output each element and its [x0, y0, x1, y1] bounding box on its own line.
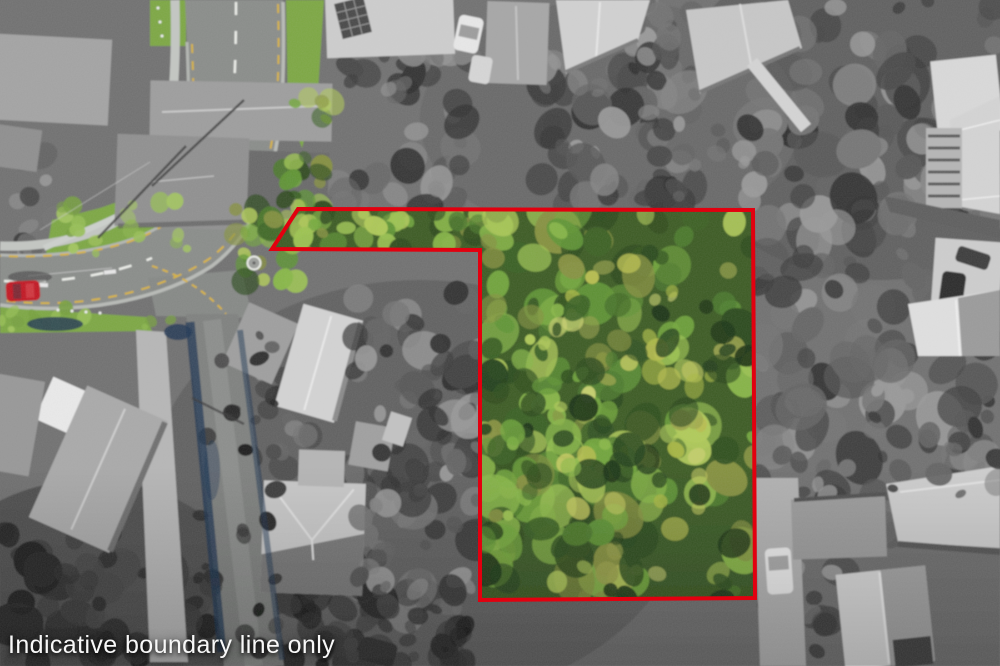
boundary-disclaimer-text: Indicative boundary line only	[8, 632, 335, 660]
aerial-property-photo: Indicative boundary line only	[0, 0, 1000, 666]
aerial-photo-canvas	[0, 0, 1000, 666]
film-grain	[0, 0, 1000, 666]
